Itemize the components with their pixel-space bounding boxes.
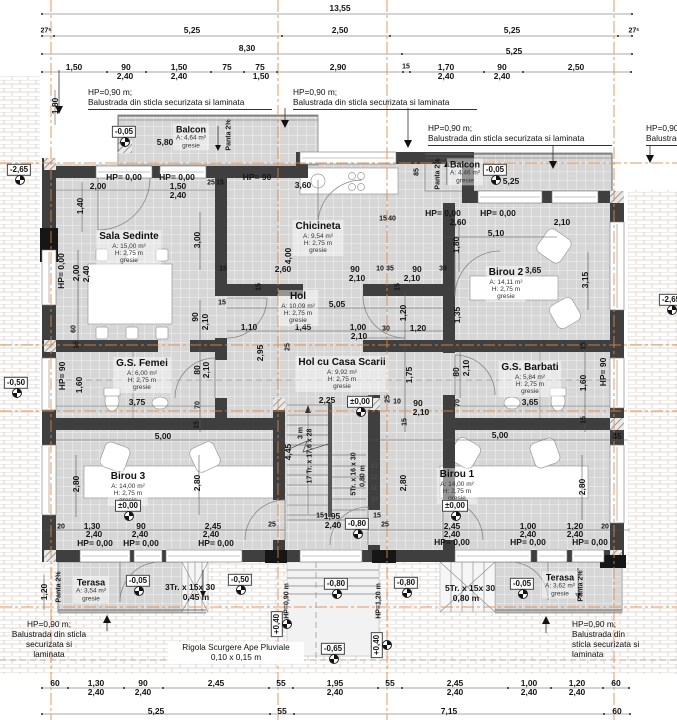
dimension-label: 5,10	[488, 229, 505, 238]
dimension-label: 55	[385, 679, 394, 688]
dimension-label: 20	[57, 524, 65, 531]
room-info: A: 14,00 m²	[440, 481, 474, 488]
dimension-label: 55	[276, 679, 285, 688]
level-marker-symbol	[518, 589, 528, 599]
room-info: H: 2,75 m	[295, 240, 340, 247]
dimension-label: 0,80 m	[453, 594, 479, 603]
dimension-label: 15	[379, 216, 387, 223]
dimension-label: 2,40	[325, 521, 342, 530]
dimension-label: 2,10	[413, 408, 430, 417]
room-info: H: 2,75 m	[111, 490, 145, 497]
room-info: A: 14,00 m²	[111, 483, 145, 490]
level-marker-symbol	[134, 586, 144, 596]
dimension-label: 55	[277, 707, 286, 716]
room-info: A: 9,92 m²	[298, 369, 385, 376]
dimension-label: 2,40	[447, 688, 464, 697]
dimension-label: 85	[414, 168, 421, 176]
dimension-label: 15	[74, 341, 81, 349]
dimension-label: 15	[216, 180, 224, 187]
dimension-label: 60	[611, 679, 620, 688]
dimension-label: HP= 0,00	[77, 539, 113, 548]
dimension-label: Panta 2%	[578, 570, 585, 601]
room-label-terasa-stanga: TerasaA: 3,54 m²gresie	[73, 576, 109, 603]
dimension-label: 3,65	[522, 398, 539, 407]
dimension-label: 12	[370, 475, 377, 481]
dimension-label: 2,10	[351, 332, 368, 341]
room-info: A: 4,46 m²	[450, 170, 480, 177]
dimension-label: 45	[612, 432, 621, 441]
dimension-label: 2,10	[349, 274, 366, 283]
dimension-label: 2,80	[578, 479, 587, 496]
dimension-label: HP= 0,00	[510, 538, 546, 547]
dimension-label: 25	[285, 343, 292, 351]
dimension-label: 2,10	[404, 274, 421, 283]
dimension-label: HP= 0,00	[434, 538, 470, 547]
room-info: H: 2,75 m	[489, 286, 523, 293]
room-label-balcon-stanga: BalconA: 4,64 m²gresie	[173, 123, 209, 150]
room-info: gresie	[489, 293, 523, 300]
dimension-label: 2,10	[554, 218, 571, 227]
dimension-label: 2,50	[332, 26, 349, 35]
dimension-label: 10	[376, 266, 384, 273]
dimension-label: 2,40	[521, 688, 538, 697]
dimension-label: 30	[382, 326, 390, 333]
room-info: gresie	[295, 247, 340, 254]
dimension-label: 15	[402, 418, 409, 426]
level-marker-symbol	[332, 589, 342, 599]
dimension-label: 7,15	[441, 707, 458, 716]
level-marker-symbol	[15, 175, 25, 185]
dimension-label: 2,40	[171, 72, 188, 81]
level-marker-symbol	[124, 511, 134, 521]
dimension-label: 15	[316, 513, 324, 520]
level-marker: -2,65	[659, 294, 677, 306]
dimension-label: 90	[191, 312, 200, 321]
annotation-note: Rigola Scurgere Ape Pluviale0,10 x 0,15 …	[168, 642, 304, 664]
dimension-label: 2,50	[568, 63, 585, 72]
room-label-hol-cu-casa-scarii: Hol cu Casa ScariiA: 9,92 m²H: 2,75 mgre…	[295, 356, 388, 392]
annotation-note: HP=0,90 m;Balustrada dinsticla securizat…	[572, 620, 639, 660]
level-marker-symbol	[12, 388, 22, 398]
dimension-label: 5,25	[503, 177, 520, 186]
dimension-label: 2,10	[462, 360, 471, 377]
dimension-label: HP= 0,00	[123, 539, 159, 548]
dimension-label: 3Tr. x 15x 30	[165, 583, 215, 592]
dimension-label: 2,90	[330, 63, 347, 72]
room-info: gresie	[298, 383, 385, 390]
dimension-label: 5,25	[506, 47, 523, 56]
dimension-label: 20	[601, 524, 609, 531]
dimension-label: 2,40	[88, 688, 105, 697]
dimension-label: 10	[393, 399, 401, 406]
dimension-label: 2,80	[399, 475, 408, 492]
room-info: A: 9,54 m²	[295, 233, 340, 240]
note-line: 0,10 x 0,15 m	[170, 653, 302, 663]
dimension-label: 75	[222, 63, 231, 72]
dimension-label: 27⁵	[628, 28, 639, 35]
room-info: A: 3,62 m²	[545, 583, 575, 590]
dimension-label: HP= 0,00	[106, 173, 142, 182]
dimension-label: 2,40	[327, 688, 344, 697]
dimension-label: 2,00	[90, 182, 107, 191]
dimension-label: 25	[385, 395, 392, 403]
dimension-label: 1,40	[76, 198, 85, 215]
dimension-label: 2,80	[193, 475, 202, 492]
room-info: H: 2,75 m	[281, 310, 315, 317]
dimension-label: 25	[381, 522, 389, 529]
dimension-label: 13	[370, 464, 377, 470]
dimension-label: 5Tr. x 16 x 30	[351, 452, 358, 495]
dimension-label: 0,80 m	[360, 465, 367, 487]
dimension-label: 70	[195, 401, 202, 409]
dimension-label: HP= 0,00	[480, 209, 516, 218]
annotation-note: HP=0,90 m;Balustrada din sticla securiza…	[428, 124, 612, 146]
dimension-label: 2,40	[117, 72, 134, 81]
room-label-terasa-dreapta: TerasaA: 3,62 m²gresie	[542, 571, 578, 598]
dimension-label: 27⁵	[40, 28, 51, 35]
dimension-label: 3 m	[298, 427, 305, 439]
dimension-label: 2,40	[135, 688, 152, 697]
room-info: A: 3,54 m²	[76, 588, 106, 595]
dimension-label: 25	[207, 180, 215, 187]
dimension-label: 2,10	[202, 362, 211, 379]
dimension-label: 3,60	[295, 181, 312, 190]
room-label-chicineta: ChicinetaA: 9,54 m²H: 2,75 mgresie	[292, 220, 343, 256]
room-label-balcon-dreapta: BalconA: 4,46 m²gresie	[447, 158, 483, 185]
level-marker-symbol	[120, 137, 130, 147]
dimension-label: 60	[612, 707, 621, 716]
level-marker-symbol	[382, 640, 392, 650]
dimension-label: 1,20	[410, 324, 427, 333]
room-info: gresie	[176, 142, 206, 149]
room-info: A: 6,00 m²	[116, 370, 168, 377]
room-info: H: 2,75 m	[501, 381, 558, 388]
note-line: laminata	[8, 650, 90, 660]
dimension-label: 5,25	[504, 26, 521, 35]
room-name: Hol cu Casa Scarii	[298, 357, 385, 369]
annotation-note: HP=0,90 m;Balustrada din sticla securiza…	[293, 88, 477, 110]
room-label-birou-2: Birou 2A: 14,11 m²H: 2,75 mgresie	[486, 266, 526, 302]
dimension-label: 3,65	[525, 266, 542, 275]
dimension-label: 15	[218, 300, 226, 307]
dimension-label: 2,40	[82, 266, 91, 283]
dimension-label: 2,80	[72, 476, 81, 493]
room-name: Birou 1	[440, 469, 474, 481]
room-info: A: 4,64 m²	[176, 135, 206, 142]
annotation-note: HP=0,90 m;Balustrada din sticla securiza…	[88, 88, 272, 110]
dimension-label: HP= 0,00	[572, 538, 608, 547]
dimension-label: Panta 2%	[226, 119, 233, 150]
floor-plan-canvas: 13,5527⁵5,252,505,2527⁵8,305,251,50902,4…	[0, 0, 677, 720]
dimension-label: 1,20	[40, 584, 49, 601]
note-line: Balustrada din sticla securizata si lami…	[646, 134, 677, 144]
dimension-label: 4,00	[284, 248, 293, 265]
room-name: Sala Sedinte	[99, 231, 158, 243]
dimension-label: 2,40	[170, 191, 187, 200]
room-info: H: 2,75 m	[116, 377, 168, 384]
room-info: H: 2,75 m	[298, 376, 385, 383]
dimension-label: 15	[194, 421, 201, 429]
dimension-label: 2,40	[494, 72, 511, 81]
room-name: Balcon	[176, 124, 206, 134]
dimension-label: 2,60	[275, 265, 292, 274]
level-marker-symbol	[236, 585, 246, 595]
room-name: Birou 2	[489, 267, 523, 279]
dimension-label: 60	[50, 679, 59, 688]
dimension-label: 3,00	[193, 232, 202, 249]
level-marker-symbol	[402, 588, 412, 598]
dimension-label: 5,05	[329, 300, 346, 309]
dimension-label: 3,15	[581, 272, 590, 289]
room-label-sala-sedinte: Sala SedinteA: 15,00 m²H: 2,75 mgresie	[96, 230, 161, 266]
dimension-label: 2,60	[450, 218, 467, 227]
room-label-birou-1: Birou 1A: 14,00 m²H: 2,75 mgresie	[437, 468, 477, 504]
dimension-label: HP= 90	[599, 358, 608, 387]
room-info: gresie	[116, 384, 168, 391]
room-name: Terasa	[76, 577, 106, 587]
room-info: A: 5,84 m²	[501, 374, 558, 381]
dimension-label: 1,50	[253, 72, 270, 81]
dimension-label: HP= 90	[243, 173, 272, 182]
dimension-label: 5,25	[148, 707, 165, 716]
room-info: A: 14,11 m²	[489, 279, 523, 286]
labels-layer: 13,5527⁵5,252,505,2527⁵8,305,251,50902,4…	[0, 0, 677, 720]
dimension-label: 15	[402, 64, 410, 71]
annotation-note: HP=0,90 m;Balustrada din sticlasecurizat…	[8, 620, 90, 660]
room-name: Hol	[281, 291, 315, 303]
dimension-label: Panta 2%	[56, 571, 63, 602]
dimension-label: 2,40	[569, 688, 586, 697]
dimension-label: 15	[395, 283, 402, 291]
dimension-label: 5,25	[184, 26, 201, 35]
room-label-gs-barbati: G.S. BarbatiA: 5,84 m²H: 2,75 mgresie	[498, 361, 561, 397]
level-marker-symbol	[451, 511, 461, 521]
room-info: A: 10,09 m²	[281, 303, 315, 310]
dimension-label: 40	[388, 216, 396, 223]
dimension-label: HP= 0,00	[57, 253, 66, 289]
level-marker-symbol	[356, 407, 366, 417]
dimension-label: HP=1,20 m	[376, 583, 383, 619]
level-marker-symbol	[353, 529, 363, 539]
dimension-label: 15	[256, 283, 263, 291]
room-name: Birou 3	[111, 471, 145, 483]
dimension-label: 35	[386, 266, 394, 273]
dimension-label: 2,10	[201, 314, 210, 331]
dimension-label: 25	[268, 522, 276, 529]
dimension-label: 10	[370, 497, 377, 503]
room-info: gresie	[99, 257, 158, 264]
dimension-label: 5,80	[157, 138, 174, 147]
room-name: G.S. Femei	[116, 358, 168, 370]
dimension-label: 0,45 m	[183, 593, 209, 602]
room-info: gresie	[450, 177, 480, 184]
dimension-label: 13,55	[329, 4, 350, 13]
dimension-label: 2,25	[319, 396, 336, 405]
room-info: gresie	[76, 595, 106, 602]
note-line: Balustrada din sticla securizata si lami…	[88, 98, 272, 108]
room-info: A: 15,00 m²	[99, 243, 158, 250]
room-info: gresie	[545, 590, 575, 597]
room-label-gs-femei: G.S. FemeiA: 6,00 m²H: 2,75 mgresie	[113, 357, 171, 393]
dimension-label: 8,30	[239, 44, 256, 53]
dimension-label: 5Tr. x 15x 30	[445, 584, 495, 593]
dimension-label: 2,40	[438, 72, 455, 81]
dimension-label: 4,45	[284, 444, 293, 461]
dimension-label: 1,10	[241, 323, 258, 332]
dimension-label: 11	[371, 486, 378, 492]
dimension-label: 15	[581, 416, 588, 424]
dimension-label: 1,35	[453, 307, 462, 324]
dimension-label: 80	[452, 367, 461, 376]
dimension-label: 15	[219, 266, 227, 273]
dimension-label: HP=0,90 m	[284, 583, 291, 619]
dimension-label: 35	[439, 266, 447, 273]
dimension-label: Panta 2%	[435, 158, 442, 189]
dimension-label: 1,80	[51, 98, 60, 115]
dimension-label: 2,00	[72, 265, 81, 282]
room-label-hol: HolA: 10,09 m²H: 2,75 mgresie	[278, 290, 318, 326]
room-name: Chicineta	[295, 221, 340, 233]
dimension-label: 1,60	[75, 377, 84, 394]
dimension-label: 2,45	[208, 679, 225, 688]
dimension-label: 1,60	[579, 375, 588, 392]
dimension-label: 17 Tr. x 17,6 x 28	[307, 429, 314, 484]
room-info: gresie	[501, 388, 558, 395]
room-info: gresie	[281, 317, 315, 324]
note-line: laminata	[572, 650, 639, 660]
dimension-label: 1,50	[66, 63, 83, 72]
note-line: Balustrada din sticla securizata si lami…	[428, 134, 612, 144]
level-marker-symbol	[329, 654, 339, 664]
level-marker-symbol	[491, 175, 501, 185]
dimension-label: 15	[373, 513, 381, 520]
dimension-label: 60	[71, 325, 78, 333]
note-line: Balustrada din sticla securizata si lami…	[293, 98, 477, 108]
room-info: H: 2,75 m	[99, 250, 158, 257]
dimension-label: 3,75	[129, 398, 146, 407]
room-info: H: 2,75 m	[440, 488, 474, 495]
room-name: G.S. Barbati	[501, 362, 558, 374]
dimension-label: HP= 90	[58, 362, 67, 391]
dimension-label: 5,00	[155, 432, 172, 441]
dimension-label: 70	[455, 399, 462, 407]
room-name: Balcon	[450, 159, 480, 169]
annotation-note: HP=0,90 m;Balustrada din sticla securiza…	[646, 124, 677, 146]
room-name: Terasa	[545, 572, 575, 582]
level-marker-symbol	[667, 305, 677, 315]
dimension-label: HP= 0,00	[198, 539, 234, 548]
dimension-label: 1,20	[399, 305, 408, 322]
level-marker-symbol	[282, 619, 292, 629]
dimension-label: 1,75	[405, 367, 414, 384]
dimension-label: 5,00	[492, 431, 509, 440]
dimension-label: 1,80	[452, 237, 461, 254]
dimension-label: 2,95	[256, 345, 265, 362]
dimension-label: 15	[581, 342, 588, 350]
